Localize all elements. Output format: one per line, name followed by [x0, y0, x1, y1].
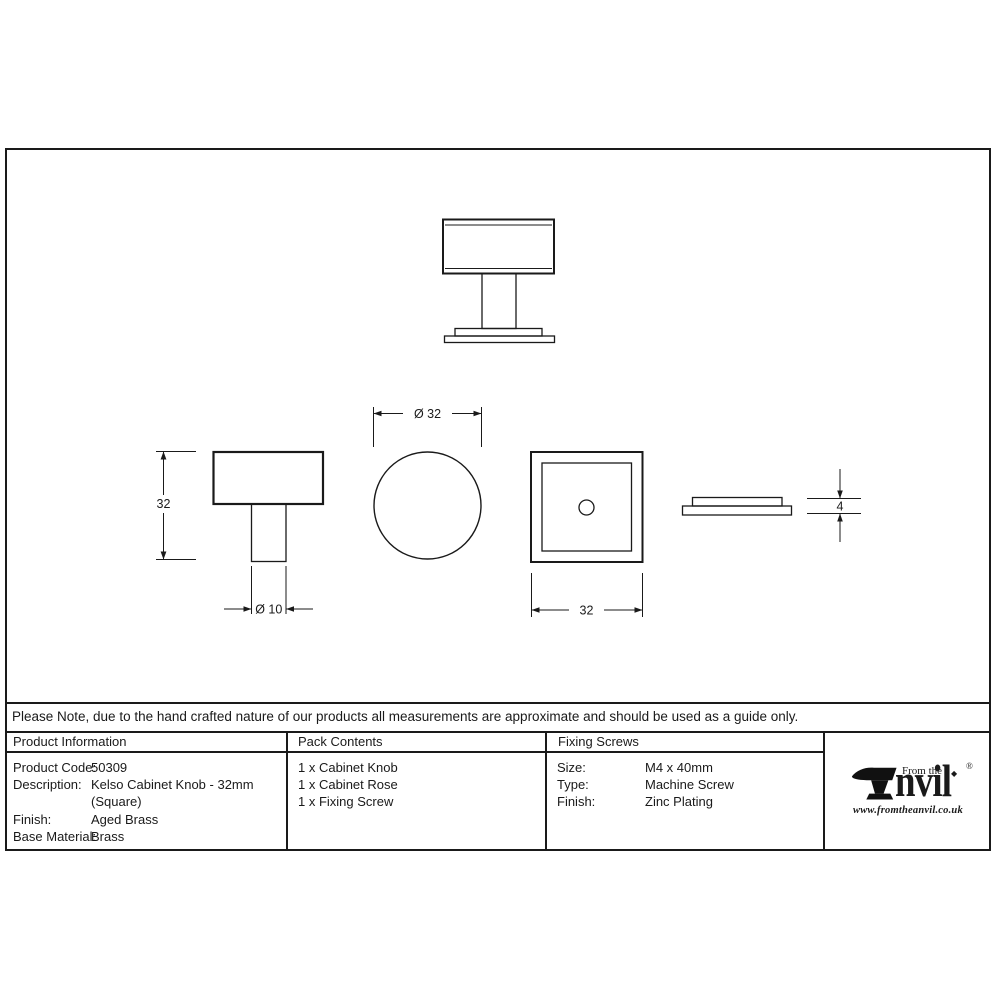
table-row: Finish:Zinc Plating: [547, 793, 823, 810]
knob-height-label: 32: [157, 497, 171, 511]
table-row: Description:Kelso Cabinet Knob - 32mm: [7, 776, 286, 793]
pack-contents-column: Pack Contents 1 x Cabinet Knob 1 x Cabin…: [286, 733, 545, 849]
rose-thickness-dimension: [807, 469, 861, 542]
table-row: Finish:Aged Brass: [7, 811, 286, 828]
knob-front-view: [374, 452, 481, 559]
row-value: 50309: [91, 760, 127, 775]
from-the-anvil-logo: nvil From the ◆ ® www.fromtheanvil.co.uk: [825, 733, 989, 849]
product-information-column: Product Information Product Code:50309 D…: [7, 733, 286, 849]
row-value: Kelso Cabinet Knob - 32mm: [91, 777, 254, 792]
spec-table: Product Information Product Code:50309 D…: [7, 731, 989, 849]
fixing-screws-column: Fixing Screws Size:M4 x 40mm Type:Machin…: [545, 733, 823, 849]
row-value: Zinc Plating: [645, 794, 713, 809]
registered-mark: ®: [966, 761, 973, 771]
diamond-dot-icon: ◆: [951, 769, 957, 778]
knob-diameter-label: Ø 32: [414, 407, 441, 421]
brand-logo-cell: nvil From the ◆ ® www.fromtheanvil.co.uk: [823, 733, 989, 849]
table-row: Product Code:50309: [7, 759, 286, 776]
row-label: Base Material:: [13, 828, 91, 845]
row-value: Machine Screw: [645, 777, 734, 792]
table-row: (Square): [7, 793, 286, 810]
row-label: Description:: [13, 776, 91, 793]
row-label: Size:: [557, 759, 645, 776]
pack-contents-header: Pack Contents: [288, 733, 545, 753]
pack-item: 1 x Fixing Screw: [288, 793, 545, 810]
pack-item: 1 x Cabinet Rose: [288, 776, 545, 793]
assembled-knob-side-view: [443, 220, 555, 343]
rose-side-view: [683, 498, 792, 516]
row-value: Brass: [91, 829, 124, 844]
row-label: Finish:: [13, 811, 91, 828]
rose-thickness-label: 4: [837, 500, 844, 514]
fixing-screws-header: Fixing Screws: [547, 733, 823, 753]
table-row: Size:M4 x 40mm: [547, 759, 823, 776]
table-row: Type:Machine Screw: [547, 776, 823, 793]
rose-plan-view: [531, 452, 643, 562]
row-label: Finish:: [557, 793, 645, 810]
stem-diameter-label: Ø 10: [255, 603, 282, 617]
row-value: (Square): [91, 794, 142, 809]
brand-website: www.fromtheanvil.co.uk: [853, 805, 963, 816]
row-value: M4 x 40mm: [645, 760, 713, 775]
row-label: Type:: [557, 776, 645, 793]
brand-tagline: From the: [902, 765, 942, 777]
row-value: Aged Brass: [91, 812, 158, 827]
technical-drawing: 32 Ø 10 Ø 32: [7, 150, 989, 702]
pack-item: 1 x Cabinet Knob: [288, 759, 545, 776]
table-row: Base Material:Brass: [7, 828, 286, 845]
measurement-note: Please Note, due to the hand crafted nat…: [7, 702, 989, 731]
product-information-header: Product Information: [7, 733, 286, 753]
knob-side-view: [214, 452, 324, 562]
measurement-note-text: Please Note, due to the hand crafted nat…: [12, 709, 798, 724]
spec-sheet: 32 Ø 10 Ø 32: [5, 148, 991, 851]
anvil-icon: [850, 763, 898, 809]
row-label: Product Code:: [13, 759, 91, 776]
rose-width-label: 32: [580, 604, 594, 618]
